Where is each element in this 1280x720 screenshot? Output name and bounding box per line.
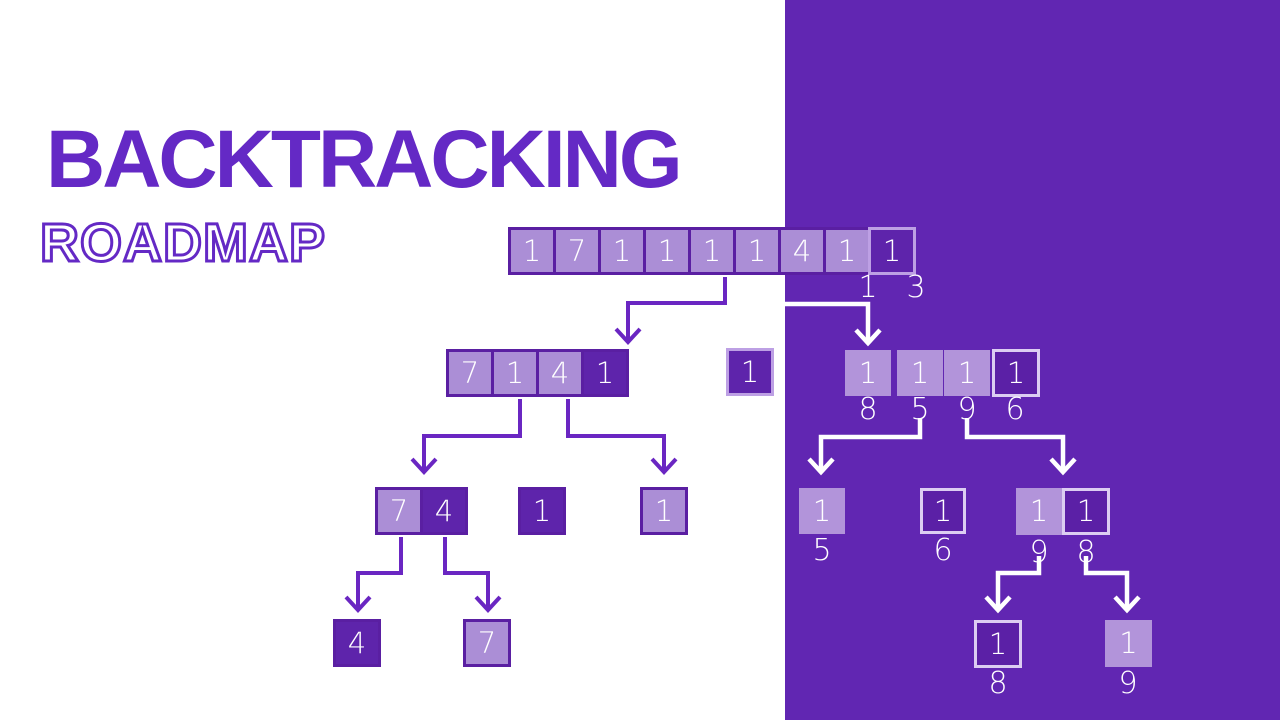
tree-cell: 1 xyxy=(491,349,539,397)
tree-cell: 7 xyxy=(446,349,494,397)
tree-cell: 1 xyxy=(643,227,691,275)
box-index-label: 5 xyxy=(910,395,929,425)
tree-cell: 4 xyxy=(420,487,468,535)
root-row: 171111411 xyxy=(508,227,916,275)
box-index-label: 8 xyxy=(858,395,877,425)
level2-left-single: 1 xyxy=(726,348,774,396)
tree-cell: 1 xyxy=(733,227,781,275)
level2-right-box-1: 1 xyxy=(845,350,891,396)
tree-cell: 1 xyxy=(1105,620,1152,667)
tree-cell: 1 xyxy=(508,227,556,275)
tree-cell: 1 xyxy=(897,350,943,396)
tree-cell: 1 xyxy=(944,350,990,396)
tree-cell: 4 xyxy=(536,349,584,397)
level4-right-dark: 1 xyxy=(974,620,1022,668)
tree-cell: 1 xyxy=(992,349,1040,397)
tree-cell: 1 xyxy=(920,488,966,534)
tree-cell: 4 xyxy=(778,227,826,275)
box-index-label: 8 xyxy=(988,669,1007,699)
tree-cell: 1 xyxy=(823,227,871,275)
level2-right-box-4: 1 xyxy=(992,349,1040,397)
level2-right-box-2: 1 xyxy=(897,350,943,396)
level4-left-light: 7 xyxy=(463,619,511,667)
tree-cell: 1 xyxy=(726,348,774,396)
box-index-label: 1 xyxy=(858,273,877,303)
box-index-label: 9 xyxy=(1118,669,1137,699)
level2-right-box-3: 1 xyxy=(944,350,990,396)
tree-cell: 1 xyxy=(1016,488,1062,535)
level3-left-pair: 74 xyxy=(375,487,468,535)
tree-cell: 1 xyxy=(974,620,1022,668)
level4-left-dark: 4 xyxy=(333,619,381,667)
tree-cell: 4 xyxy=(333,619,381,667)
tree-cell: 1 xyxy=(688,227,736,275)
level3-right-box-5: 1 xyxy=(799,488,845,534)
level3-left-dark: 1 xyxy=(518,487,566,535)
box-index-label: 8 xyxy=(1076,538,1095,568)
tree-cell: 1 xyxy=(799,488,845,534)
box-index-label: 9 xyxy=(957,395,976,425)
tree: 1711114117141111117411111147111385965698… xyxy=(0,0,1280,720)
tree-cell: 1 xyxy=(640,487,688,535)
tree-cell: 1 xyxy=(518,487,566,535)
tree-cell: 7 xyxy=(463,619,511,667)
box-index-label: 3 xyxy=(906,273,925,303)
page-subtitle: ROADMAP xyxy=(40,216,326,270)
level4-right-light: 1 xyxy=(1105,620,1152,667)
box-index-label: 9 xyxy=(1029,538,1048,568)
level3-right-pair: 11 xyxy=(1016,488,1110,535)
page-title: BACKTRACKING xyxy=(46,119,680,201)
tree-cell: 7 xyxy=(375,487,423,535)
tree-cell: 1 xyxy=(581,349,629,397)
tree-cell: 1 xyxy=(598,227,646,275)
box-index-label: 5 xyxy=(812,536,831,566)
tree-cell: 1 xyxy=(1062,488,1110,535)
tree-cell: 1 xyxy=(868,227,916,275)
tree-cell: 1 xyxy=(845,350,891,396)
box-index-label: 6 xyxy=(933,536,952,566)
slide: 1711114117141111117411111147111385965698… xyxy=(0,0,1280,720)
level3-right-box-6: 1 xyxy=(920,488,966,534)
tree-cell: 7 xyxy=(553,227,601,275)
level3-left-light: 1 xyxy=(640,487,688,535)
box-index-label: 6 xyxy=(1005,395,1024,425)
level2-left-row: 7141 xyxy=(446,349,629,397)
